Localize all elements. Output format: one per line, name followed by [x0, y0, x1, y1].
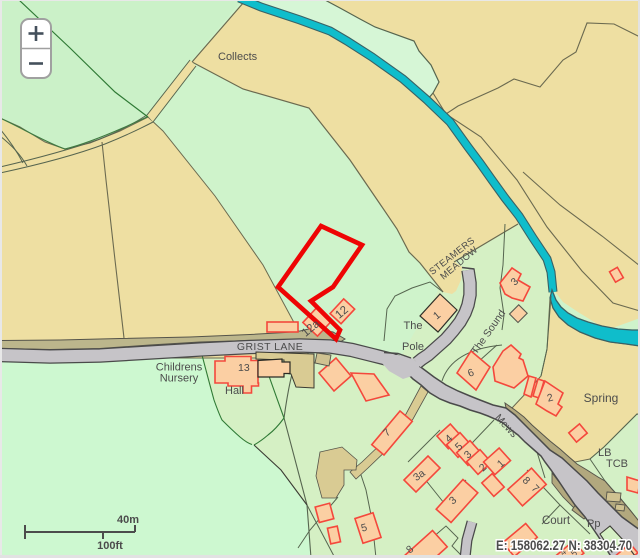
svg-text:13: 13 — [238, 362, 250, 374]
svg-text:Nursery: Nursery — [160, 373, 199, 385]
svg-text:E: 158062.27 N: 38304.70: E: 158062.27 N: 38304.70 — [496, 538, 632, 553]
svg-text:Pp: Pp — [587, 518, 600, 530]
svg-text:TCB: TCB — [606, 458, 628, 470]
svg-text:40m: 40m — [117, 514, 139, 526]
svg-text:GRIST LANE: GRIST LANE — [237, 341, 303, 353]
svg-text:Hall: Hall — [225, 385, 244, 397]
svg-text:Court: Court — [542, 515, 571, 527]
svg-text:The: The — [404, 320, 423, 332]
svg-text:Collects: Collects — [218, 51, 258, 63]
svg-text:Spring: Spring — [584, 391, 619, 405]
svg-text:Pole: Pole — [402, 341, 424, 353]
svg-text:100ft: 100ft — [97, 540, 123, 552]
